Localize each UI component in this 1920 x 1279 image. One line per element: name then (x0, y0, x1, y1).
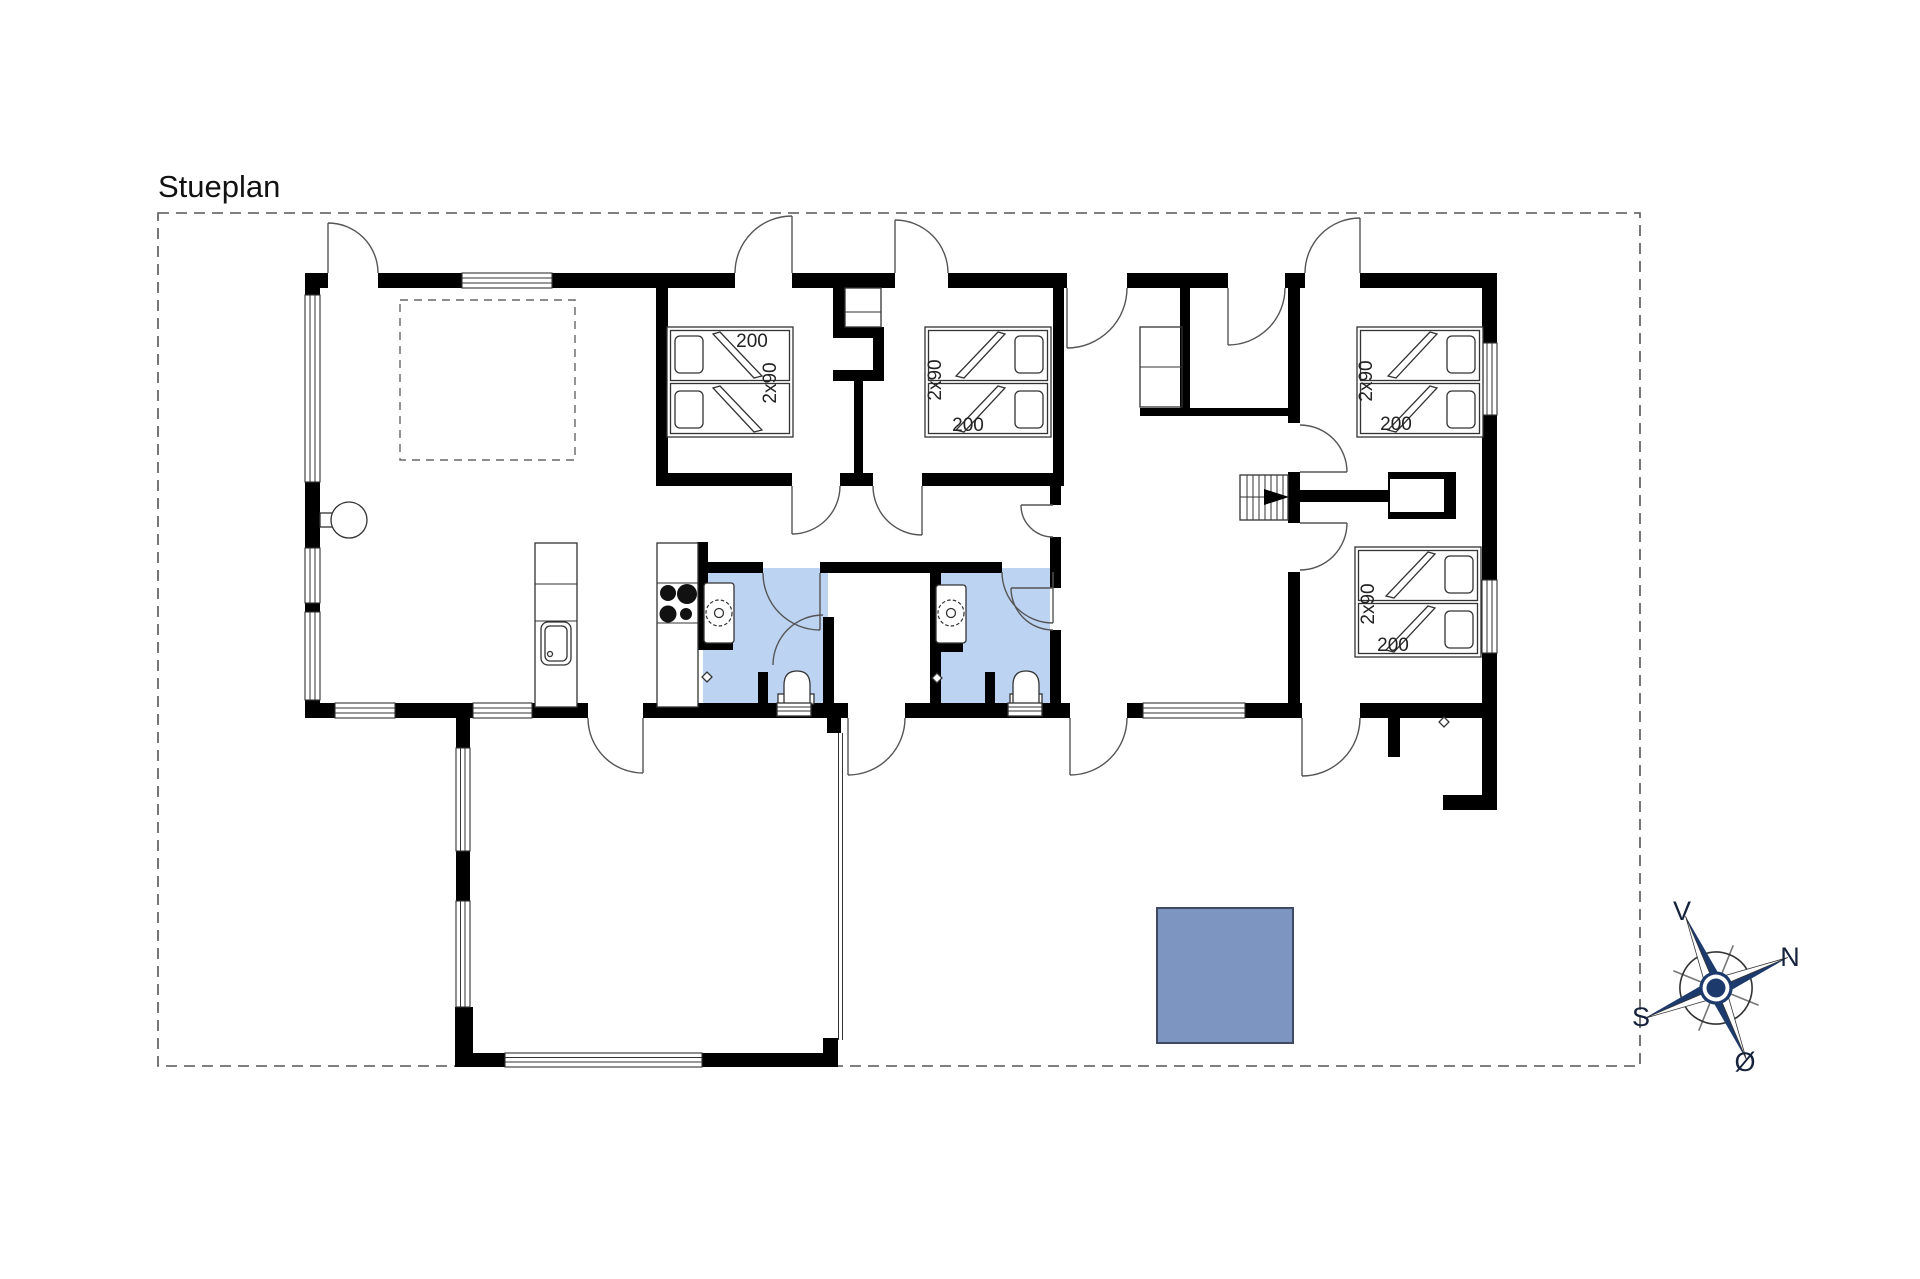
bed1-length-label: 200 (736, 331, 768, 352)
exterior-walls (305, 273, 1497, 810)
terrace (455, 717, 843, 1067)
bed2-length-label: 200 (952, 415, 984, 436)
floor-plan: Stueplan (0, 0, 1920, 1279)
page-title: Stueplan (158, 169, 280, 204)
wardrobe (845, 288, 881, 327)
stairs-icon (1240, 475, 1289, 520)
compass-south-label: S (1632, 1002, 1650, 1032)
blue-square-marker (1157, 908, 1293, 1043)
bed3-width-label: 2x90 (1356, 360, 1377, 401)
loft-opening-outline (400, 300, 575, 460)
wood-stove-icon (320, 502, 367, 538)
bed4-width-label: 2x90 (1358, 583, 1379, 624)
compass-west-label: V (1673, 896, 1691, 926)
compass-north-label: N (1780, 942, 1800, 972)
kitchen-counter-stove (657, 543, 698, 707)
compass-rose: V N S Ø (1614, 886, 1819, 1091)
bed1-width-label: 2x90 (760, 362, 781, 403)
bed2-width-label: 2x90 (925, 359, 946, 400)
bed3-length-label: 200 (1380, 414, 1412, 435)
bed4-length-label: 200 (1377, 635, 1409, 656)
compass-east-label: Ø (1734, 1047, 1755, 1077)
kitchen-counter-sink (535, 543, 577, 707)
